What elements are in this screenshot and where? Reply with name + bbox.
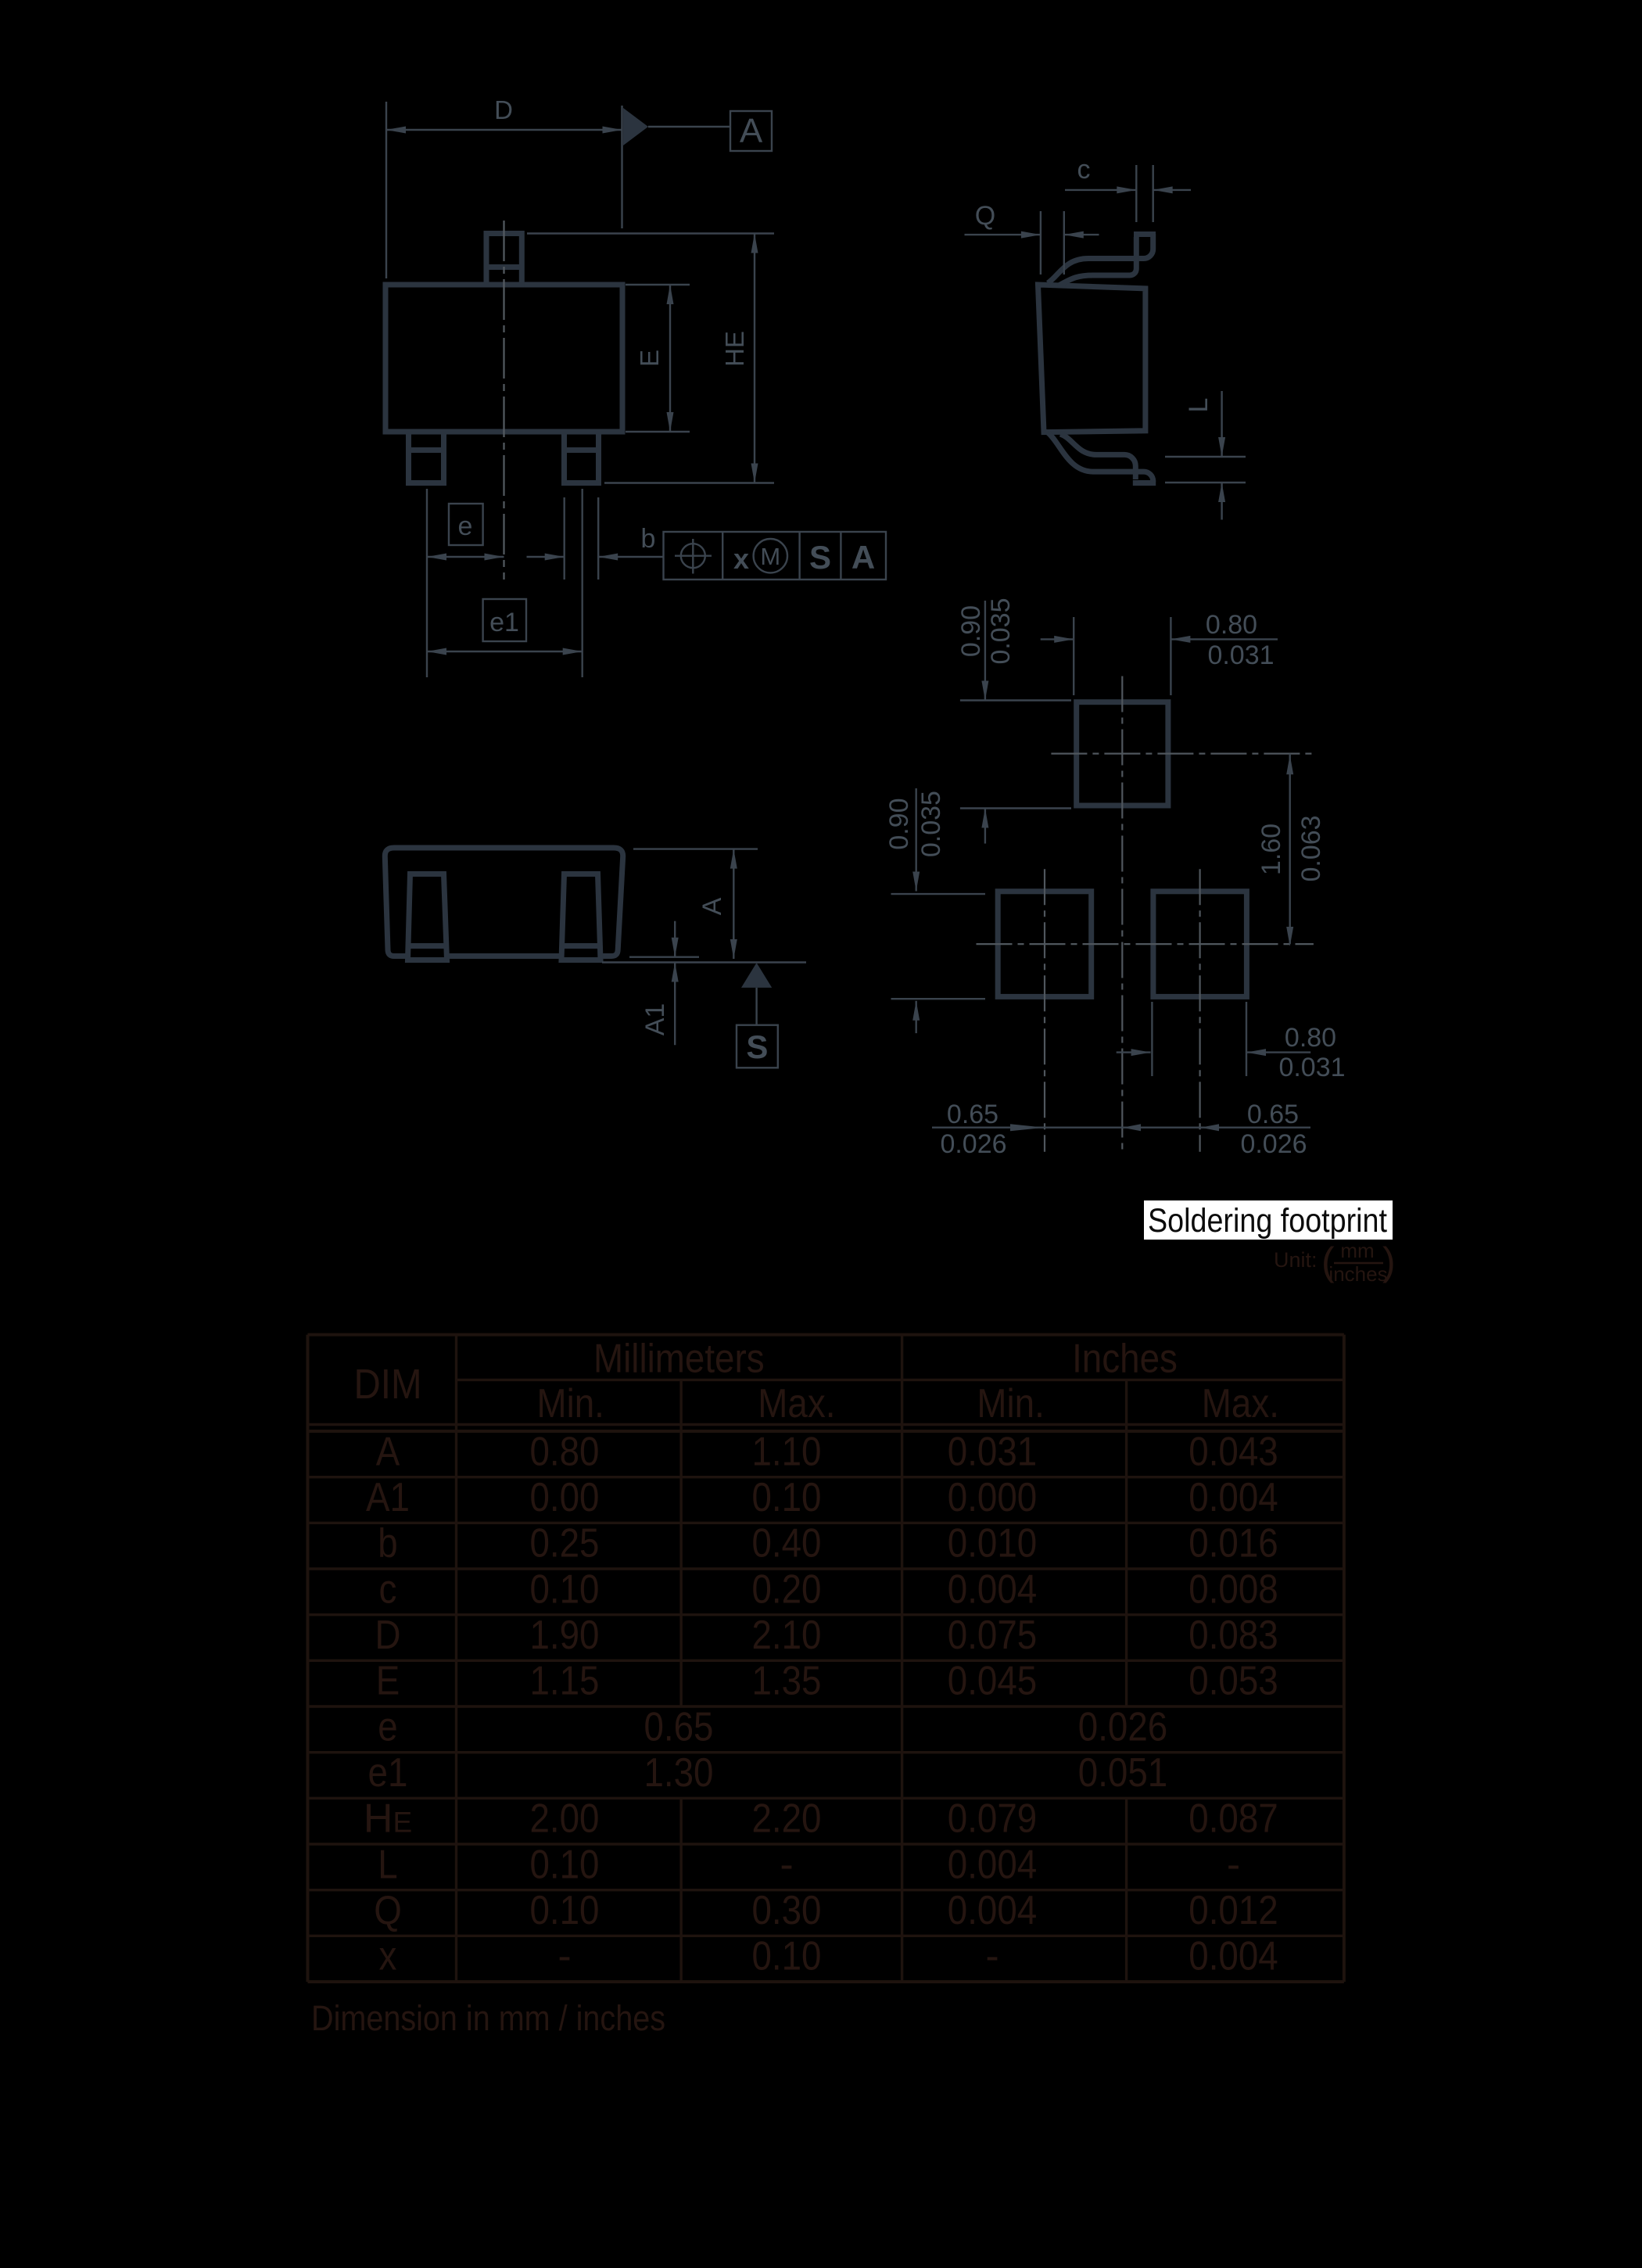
svg-text:0.10: 0.10 [530,1566,600,1612]
svg-text:0.90: 0.90 [956,605,986,657]
svg-text:0.031: 0.031 [1278,1053,1345,1082]
svg-text:0.004: 0.004 [1188,1934,1278,1979]
svg-text:Soldering footprint: Soldering footprint [1148,1202,1387,1240]
svg-text:Min.: Min. [537,1381,604,1426]
svg-text:0.026: 0.026 [1240,1129,1307,1159]
svg-text:0.20: 0.20 [752,1566,822,1612]
svg-text:0.083: 0.083 [1188,1613,1278,1658]
svg-text:0.053: 0.053 [1188,1659,1278,1704]
svg-text:1.30: 1.30 [644,1750,714,1796]
svg-text:e: e [378,1704,397,1749]
svg-text:0.010: 0.010 [948,1521,1038,1566]
svg-text:-: - [985,1934,998,1979]
svg-text:A1: A1 [640,1003,670,1036]
svg-text:S: S [809,539,831,576]
svg-text:2.10: 2.10 [752,1613,822,1658]
svg-text:0.10: 0.10 [530,1888,600,1933]
svg-text:L: L [1184,398,1214,413]
svg-text:0.65: 0.65 [1247,1100,1299,1129]
svg-text:0.80: 0.80 [530,1429,600,1474]
svg-text:D: D [375,1613,401,1658]
svg-text:0.80: 0.80 [1206,610,1257,640]
svg-text:0.026: 0.026 [940,1129,1006,1159]
svg-text:0.043: 0.043 [1188,1429,1278,1474]
svg-text:1.10: 1.10 [752,1429,822,1474]
svg-text:b: b [378,1521,397,1566]
svg-text:e: e [458,511,473,541]
svg-text:0.004: 0.004 [948,1566,1038,1612]
svg-text:0.031: 0.031 [948,1429,1038,1474]
svg-text:0.90: 0.90 [884,798,914,850]
svg-text:b: b [641,524,656,554]
svg-text:Dimension in mm / inches: Dimension in mm / inches [311,1998,665,2038]
svg-text:mm: mm [1340,1239,1374,1262]
svg-text:A: A [740,112,763,150]
svg-text:Max.: Max. [758,1381,835,1426]
svg-text:x: x [733,543,749,575]
svg-text:0.016: 0.016 [1188,1521,1278,1566]
svg-text:1.60: 1.60 [1257,824,1286,875]
svg-text:Q: Q [374,1888,402,1933]
svg-text:Inches: Inches [1072,1337,1178,1382]
svg-text:E: E [376,1659,400,1704]
svg-text:0.10: 0.10 [752,1934,822,1979]
svg-text:0.035: 0.035 [916,791,946,857]
svg-text:A1: A1 [366,1475,410,1520]
svg-text:0.087: 0.087 [1188,1796,1278,1842]
svg-text:S: S [746,1028,768,1065]
svg-text:0.000: 0.000 [948,1475,1038,1520]
svg-text:e1: e1 [368,1750,408,1796]
svg-text:E: E [635,350,664,367]
svg-text:0.65: 0.65 [947,1100,998,1129]
svg-text:-: - [1227,1842,1240,1887]
svg-text:DIM: DIM [353,1361,421,1408]
svg-text:0.30: 0.30 [752,1888,822,1933]
svg-text:0.031: 0.031 [1207,641,1274,670]
svg-text:M: M [760,543,780,570]
svg-text:-: - [780,1842,793,1887]
svg-text:L: L [378,1842,397,1887]
svg-text:e1: e1 [489,608,519,637]
svg-text:0.075: 0.075 [948,1613,1038,1658]
svg-text:inches: inches [1328,1262,1387,1286]
svg-text:0.25: 0.25 [530,1521,600,1566]
svg-text:c: c [379,1566,397,1612]
svg-text:A: A [697,897,727,915]
svg-text:0.00: 0.00 [530,1475,600,1520]
svg-text:1.15: 1.15 [530,1659,600,1704]
svg-text:0.012: 0.012 [1188,1888,1278,1933]
svg-text:0.063: 0.063 [1296,815,1326,881]
svg-text:0.10: 0.10 [752,1475,822,1520]
svg-text:A: A [376,1429,400,1474]
svg-text:0.079: 0.079 [948,1796,1038,1842]
svg-text:0.004: 0.004 [1188,1475,1278,1520]
svg-text:0.026: 0.026 [1078,1704,1168,1749]
svg-text:Millimeters: Millimeters [593,1337,765,1382]
svg-text:Unit:: Unit: [1274,1248,1318,1272]
svg-text:0.65: 0.65 [644,1704,714,1749]
svg-text:0.40: 0.40 [752,1521,822,1566]
svg-text:1.90: 1.90 [530,1613,600,1658]
svg-text:0.035: 0.035 [986,598,1016,664]
svg-text:2.00: 2.00 [530,1796,600,1842]
svg-text:Min.: Min. [977,1381,1044,1426]
svg-text:Max.: Max. [1202,1381,1279,1426]
svg-text:0.80: 0.80 [1285,1023,1336,1053]
svg-text:1.35: 1.35 [752,1659,822,1704]
svg-text:0.004: 0.004 [948,1842,1038,1887]
svg-text:c: c [1077,155,1091,185]
svg-text:0.008: 0.008 [1188,1566,1278,1612]
svg-text:0.045: 0.045 [948,1659,1038,1704]
svg-text:A: A [851,539,875,576]
svg-text:Q: Q [975,201,995,231]
svg-text:0.004: 0.004 [948,1888,1038,1933]
svg-text:0.051: 0.051 [1078,1750,1168,1796]
svg-text:HE: HE [720,331,749,367]
svg-text:D: D [494,95,513,124]
svg-text:x: x [379,1934,397,1979]
svg-text:-: - [557,1934,571,1979]
svg-text:2.20: 2.20 [752,1796,822,1842]
svg-text:0.10: 0.10 [530,1842,600,1887]
